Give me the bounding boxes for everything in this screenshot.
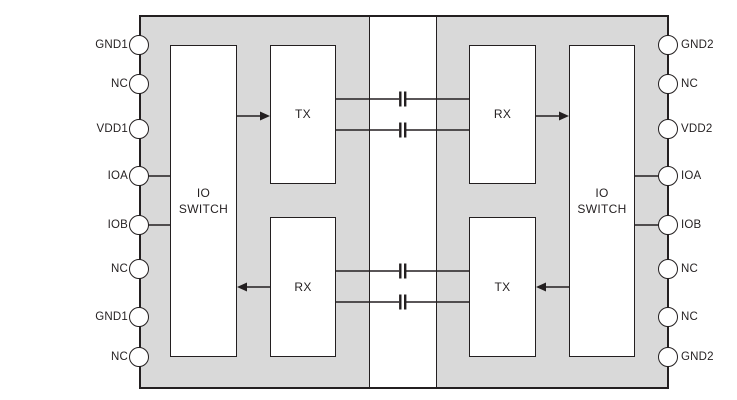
pin-circle-right-gnd2-top — [658, 35, 678, 55]
pin-label-left-nc-3: NC — [58, 349, 128, 365]
pin-circle-left-nc-3 — [129, 347, 149, 367]
pin-circle-left-nc-1 — [129, 74, 149, 94]
pin-circle-left-iob — [129, 215, 149, 235]
pin-label-left-vdd1: VDD1 — [58, 121, 128, 137]
pin-label-right-ioa: IOA — [681, 168, 701, 184]
left-tx-block: TX — [270, 45, 336, 184]
pin-circle-left-vdd1 — [129, 119, 149, 139]
pin-label-left-nc-1: NC — [58, 76, 128, 92]
pin-circle-right-vdd2 — [658, 119, 678, 139]
pin-circle-left-ioa — [129, 166, 149, 186]
pin-circle-left-nc-2 — [129, 259, 149, 279]
pin-circle-right-nc-1 — [658, 74, 678, 94]
right-io-switch-label: IO SWITCH — [577, 185, 626, 217]
left-io-switch-label: IO SWITCH — [179, 185, 228, 217]
pin-circle-right-nc-2 — [658, 259, 678, 279]
pin-circle-right-iob — [658, 215, 678, 235]
pin-label-right-nc-3: NC — [681, 309, 698, 325]
pin-label-right-gnd2-top: GND2 — [681, 37, 714, 53]
pin-label-left-iob: IOB — [58, 217, 128, 233]
left-rx-block: RX — [270, 217, 336, 357]
pin-label-left-nc-2: NC — [58, 261, 128, 277]
pin-label-left-gnd1-top: GND1 — [58, 37, 128, 53]
pin-label-right-nc-2: NC — [681, 261, 698, 277]
pin-label-right-vdd2: VDD2 — [681, 121, 712, 137]
left-tx-label: TX — [295, 106, 311, 122]
isolation-barrier — [369, 17, 437, 387]
functional-block-diagram: IO SWITCH TX RX RX TX IO SWITCH — [0, 0, 737, 400]
pin-label-right-nc-1: NC — [681, 76, 698, 92]
right-tx-block: TX — [469, 217, 536, 357]
pin-label-left-gnd1-bottom: GND1 — [58, 309, 128, 325]
pin-label-right-gnd2-bottom: GND2 — [681, 349, 714, 365]
pin-circle-right-gnd2-bottom — [658, 347, 678, 367]
right-rx-block: RX — [469, 45, 536, 184]
pin-circle-left-gnd1-bottom — [129, 307, 149, 327]
right-io-switch-block: IO SWITCH — [569, 45, 635, 357]
left-rx-label: RX — [294, 279, 311, 295]
pin-circle-left-gnd1-top — [129, 35, 149, 55]
pin-label-right-iob: IOB — [681, 217, 701, 233]
pin-circle-right-ioa — [658, 166, 678, 186]
pin-circle-right-nc-3 — [658, 307, 678, 327]
pin-label-left-ioa: IOA — [58, 168, 128, 184]
right-tx-label: TX — [495, 279, 511, 295]
left-io-switch-block: IO SWITCH — [170, 45, 237, 357]
right-rx-label: RX — [494, 106, 511, 122]
